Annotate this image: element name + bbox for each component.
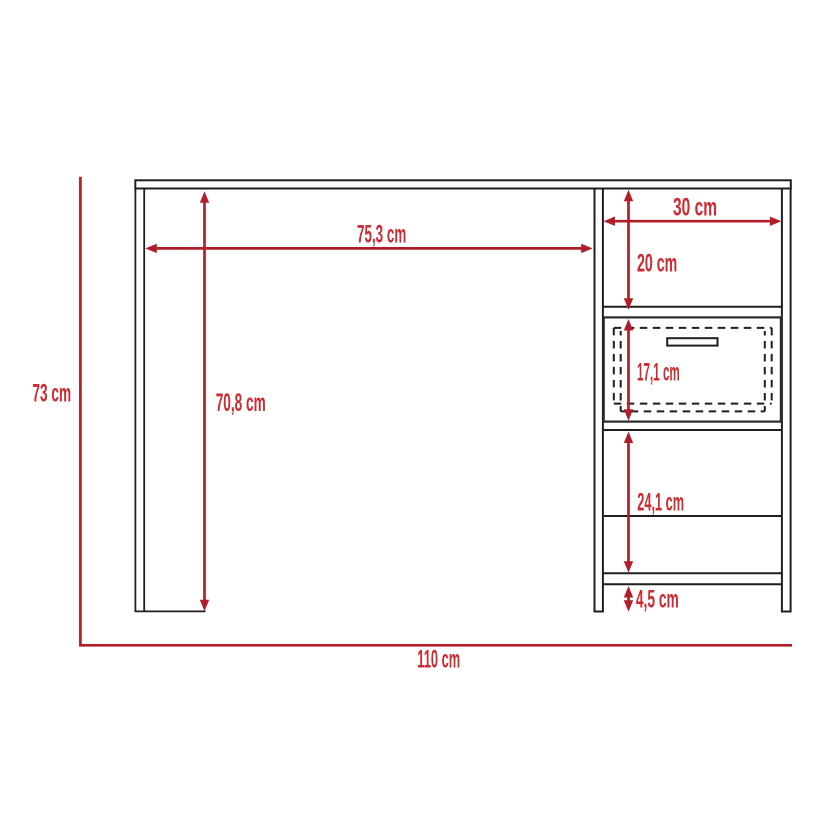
svg-text:110 cm: 110 cm	[417, 646, 460, 674]
svg-text:20 cm: 20 cm	[637, 249, 677, 277]
svg-text:24,1 cm: 24,1 cm	[637, 488, 684, 516]
svg-text:30 cm: 30 cm	[673, 193, 717, 221]
svg-text:17,1 cm: 17,1 cm	[637, 359, 680, 387]
svg-text:75,3 cm: 75,3 cm	[357, 221, 406, 249]
svg-text:4,5 cm: 4,5 cm	[636, 586, 679, 614]
svg-text:70,8 cm: 70,8 cm	[216, 389, 266, 417]
svg-text:73 cm: 73 cm	[32, 380, 71, 408]
